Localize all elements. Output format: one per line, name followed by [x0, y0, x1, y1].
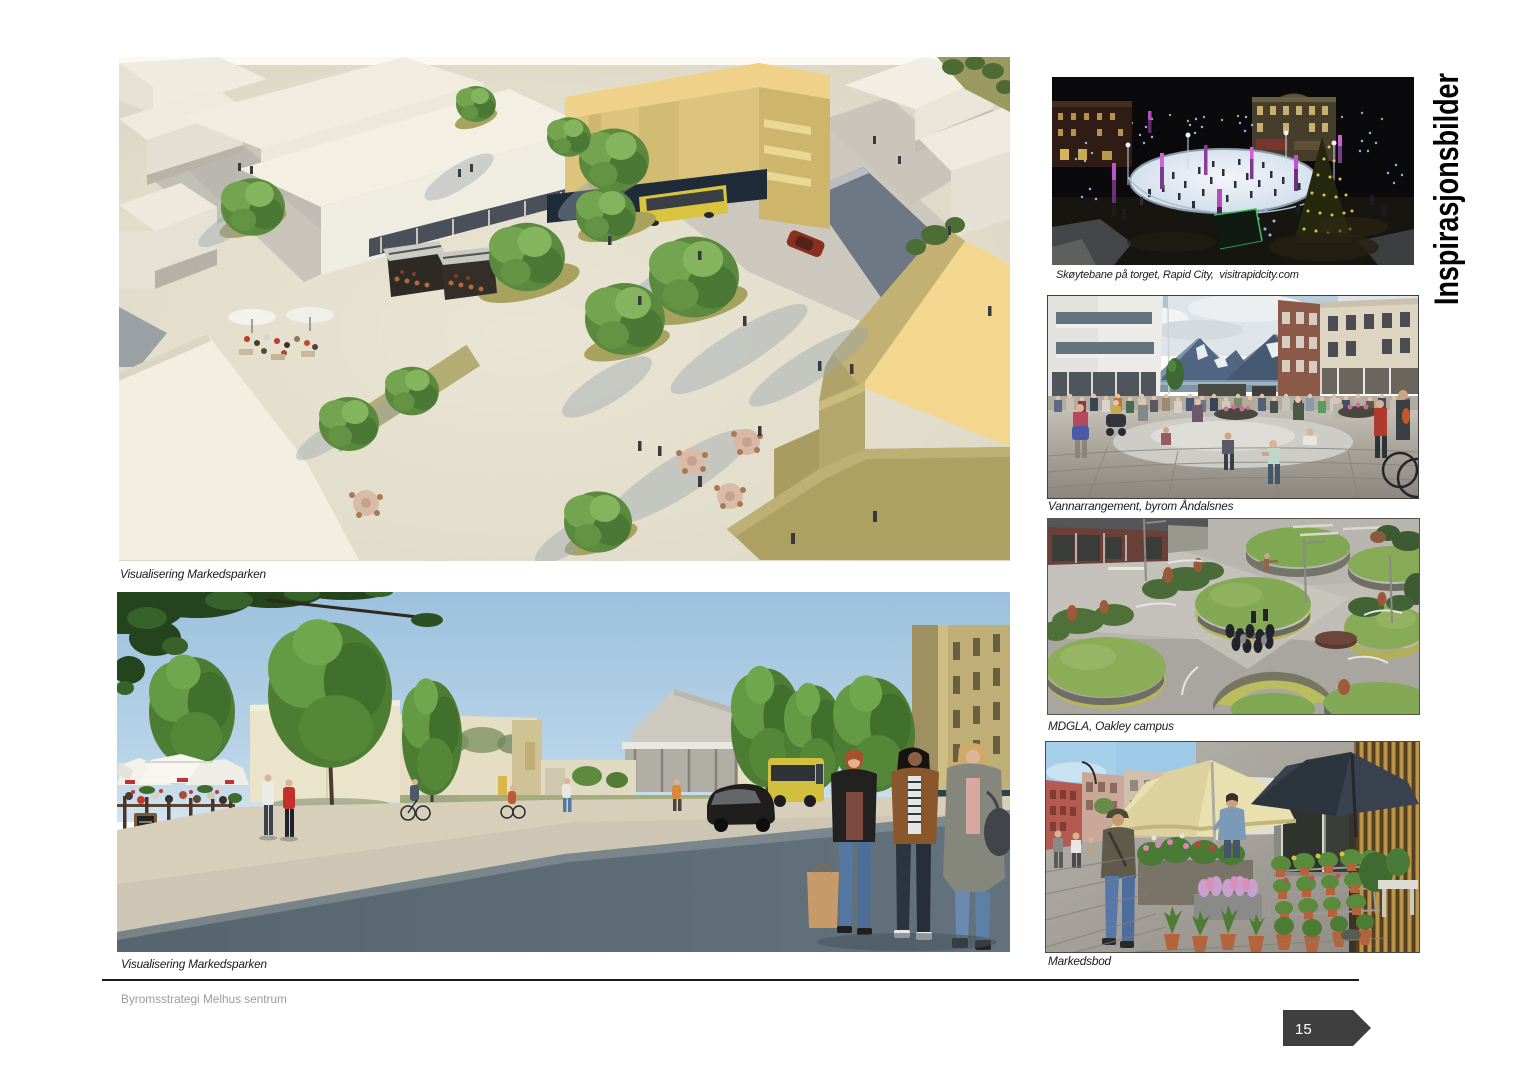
svg-text:Inspirasjonsbilder: Inspirasjonsbilder — [1428, 73, 1466, 305]
svg-text:15: 15 — [1295, 1021, 1312, 1038]
